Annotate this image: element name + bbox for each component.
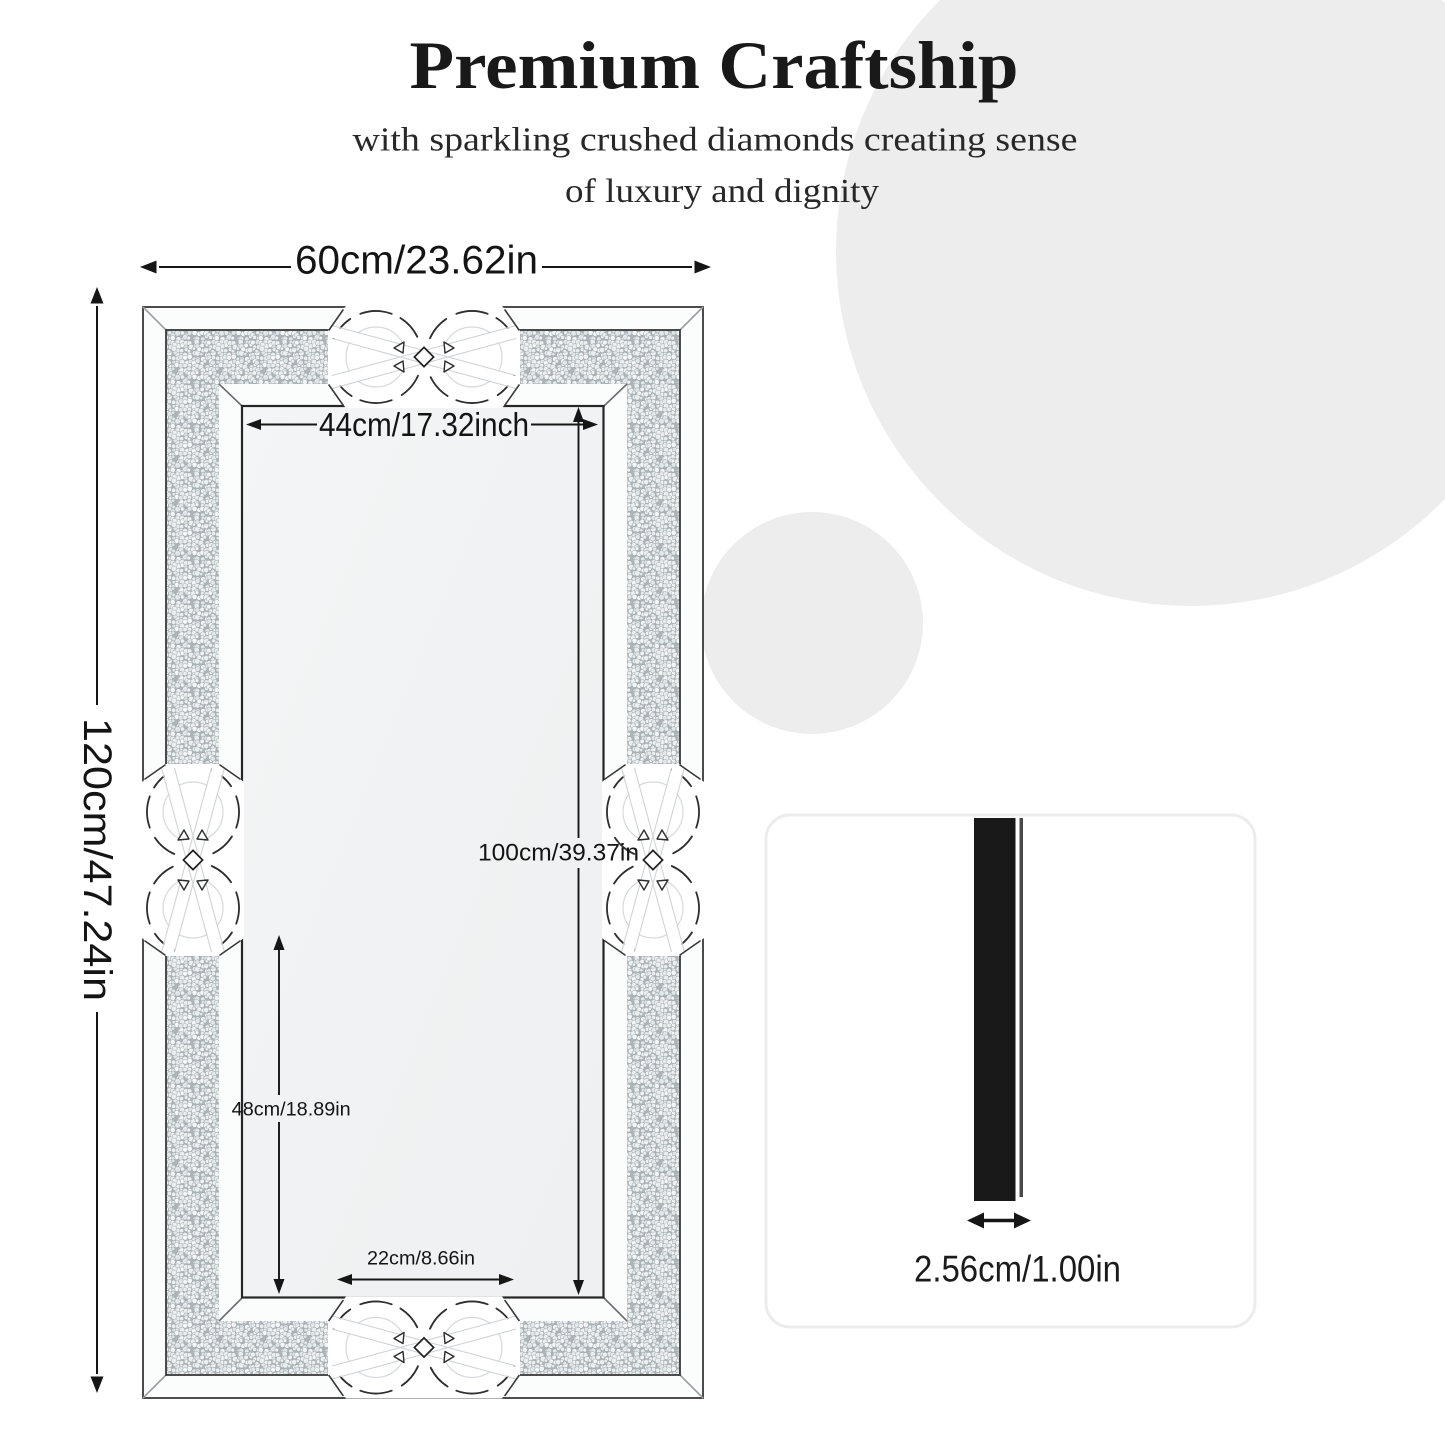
svg-text:48cm/18.89in: 48cm/18.89in	[232, 1100, 351, 1121]
svg-text:120cm/47.24in: 120cm/47.24in	[75, 718, 119, 1001]
svg-text:with sparkling crushed diamond: with sparkling crushed diamonds creating…	[353, 122, 1078, 159]
svg-text:60cm/23.62in: 60cm/23.62in	[295, 239, 538, 283]
svg-text:of luxury and dignity: of luxury and dignity	[565, 173, 879, 210]
svg-text:22cm/8.66in: 22cm/8.66in	[367, 1249, 475, 1270]
svg-text:Premium Craftship: Premium Craftship	[410, 27, 1019, 103]
svg-text:100cm/39.37in: 100cm/39.37in	[478, 840, 639, 867]
svg-text:2.56cm/1.00in: 2.56cm/1.00in	[914, 1249, 1121, 1290]
svg-text:44cm/17.32inch: 44cm/17.32inch	[319, 406, 529, 443]
